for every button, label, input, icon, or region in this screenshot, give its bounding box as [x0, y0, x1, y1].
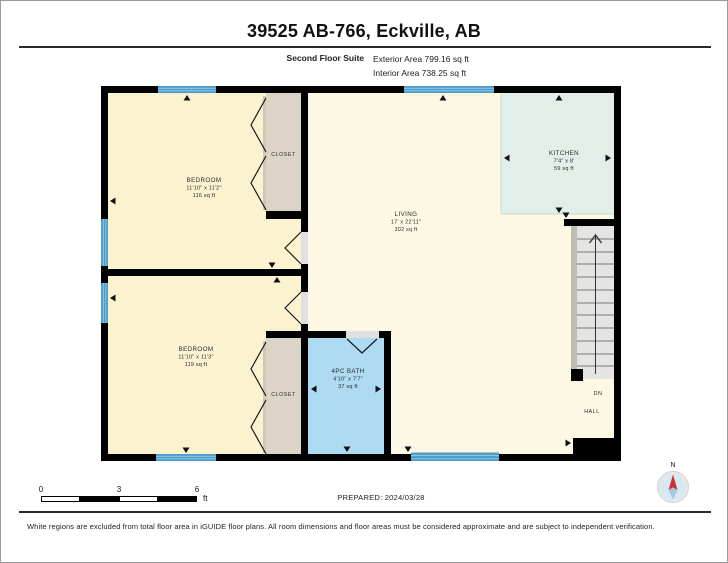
window-bedroom2-left	[101, 283, 108, 323]
stair-stringer	[571, 226, 577, 379]
living-label: LIVING	[395, 211, 418, 218]
bedroom1-label: BEDROOM	[187, 177, 222, 184]
page-title: 39525 AB-766, Eckville, AB	[1, 21, 727, 42]
area-summary: Exterior Area 799.16 sq ft Interior Area…	[373, 53, 469, 80]
disclaimer-text: White regions are excluded from total fl…	[27, 522, 717, 531]
hall-label: HALL	[584, 409, 600, 415]
scale-bar-segments	[41, 496, 197, 502]
scale-tick-0: 0	[35, 485, 47, 494]
scale-tick-6: 6	[191, 485, 203, 494]
room-bedroom-1-alcove	[266, 219, 301, 269]
compass-rose-icon	[656, 470, 690, 504]
scale-bar: 0 3 6 ft	[41, 485, 261, 509]
bath-label: 4PC BATH	[332, 368, 365, 375]
closet-bottom-label: CLOSET	[271, 392, 296, 398]
living-dims: 17' x 22'11"	[391, 220, 421, 226]
bath-door-opening	[346, 331, 379, 338]
bedroom1-area: 116 sq ft	[193, 193, 216, 199]
wall-notch	[573, 438, 621, 461]
compass: N	[656, 462, 690, 509]
window-living-bottom	[411, 453, 499, 462]
window-bedroom1-top	[158, 86, 216, 93]
closet-track	[263, 341, 266, 453]
bedroom2-door-opening	[301, 292, 308, 324]
bath-dims: 4'10" x 7'7"	[333, 377, 363, 383]
living-area: 302 sq ft	[395, 227, 418, 233]
scale-unit: ft	[203, 494, 207, 503]
bedroom2-area: 119 sq ft	[185, 362, 208, 368]
stairs-dn-label: DN	[594, 391, 603, 397]
interior-area: Interior Area 738.25 sq ft	[373, 67, 469, 81]
window-living-top	[404, 86, 494, 93]
kitchen-dims: 7'4" x 8'	[554, 159, 575, 165]
bath-right-wall	[384, 331, 391, 454]
room-bath	[308, 338, 384, 454]
window-bedroom2-bottom	[156, 454, 216, 461]
stair-post	[571, 369, 583, 381]
footer-divider	[19, 511, 711, 513]
kitchen-area: 59 sq ft	[554, 166, 574, 172]
closet-top-label: CLOSET	[271, 152, 296, 158]
bath-area: 37 sq ft	[338, 384, 358, 390]
header-divider	[19, 46, 711, 48]
bedroom2-label: BEDROOM	[179, 346, 214, 353]
window-bedroom1-left	[101, 219, 108, 266]
closet-track	[263, 96, 266, 210]
kitchen-label: KITCHEN	[549, 150, 579, 157]
compass-north-label: N	[656, 462, 690, 469]
stairwell-wall	[564, 219, 614, 226]
bedroom1-dims: 11'10" x 11'2"	[186, 186, 221, 192]
floor-plan-drawing: BEDROOM 11'10" x 11'2" 116 sq ft BEDROOM…	[101, 86, 621, 461]
scale-tick-3: 3	[113, 485, 125, 494]
room-bedroom-2-alcove	[266, 276, 301, 331]
bedroom1-door-opening	[301, 232, 308, 264]
floor-plan-page: 39525 AB-766, Eckville, AB Second Floor …	[0, 0, 728, 563]
prepared-date: PREPARED: 2024/03/28	[301, 493, 461, 502]
bedroom2-dims: 11'10" x 11'3"	[178, 355, 213, 361]
floor-label: Second Floor Suite	[151, 53, 364, 63]
exterior-area: Exterior Area 799.16 sq ft	[373, 53, 469, 67]
